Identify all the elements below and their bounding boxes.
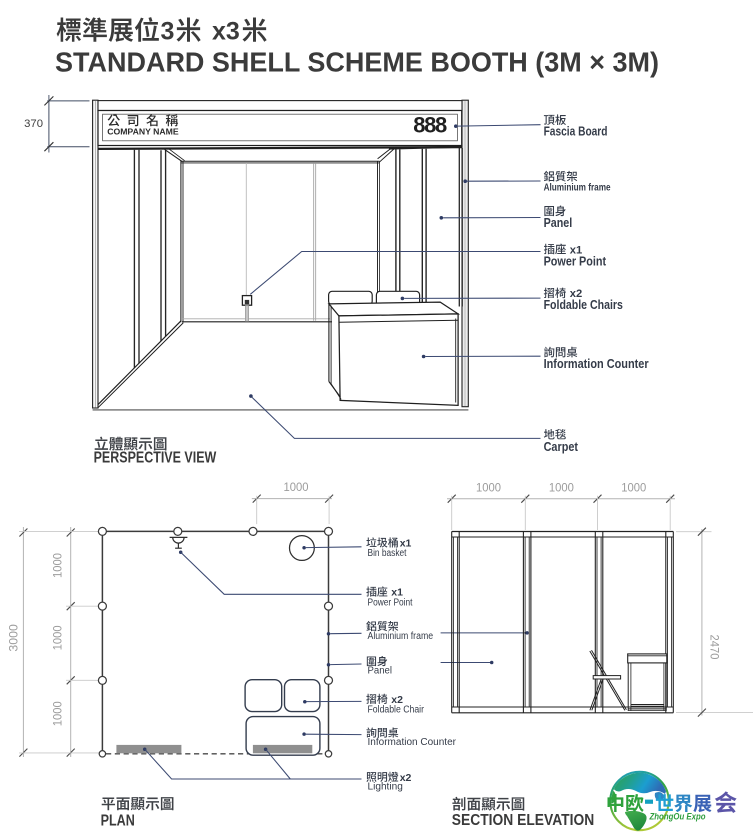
svg-text:1000: 1000: [549, 480, 574, 494]
svg-text:1000: 1000: [476, 480, 501, 494]
svg-text:Fascia Board: Fascia Board: [544, 123, 608, 138]
svg-text:Panel: Panel: [544, 215, 573, 230]
svg-text:STANDARD SHELL SCHEME BOOTH (3: STANDARD SHELL SCHEME BOOTH (3M × 3M): [55, 47, 659, 78]
svg-text:Foldable Chairs: Foldable Chairs: [544, 297, 623, 312]
svg-text:1000: 1000: [621, 480, 646, 494]
svg-text:Aluminium frame: Aluminium frame: [368, 631, 434, 642]
svg-text:SECTION ELEVATION: SECTION ELEVATION: [452, 812, 594, 829]
svg-text:2470: 2470: [707, 635, 721, 660]
svg-text:COMPANY NAME: COMPANY NAME: [107, 126, 179, 136]
svg-text:Power Point: Power Point: [368, 598, 413, 609]
svg-text:Lighting: Lighting: [368, 782, 403, 793]
svg-text:370: 370: [24, 118, 43, 130]
svg-text:Information Counter: Information Counter: [544, 356, 649, 371]
svg-text:ZhongOu Expo: ZhongOu Expo: [649, 812, 706, 822]
svg-text:Aluminium frame: Aluminium frame: [544, 182, 612, 193]
svg-text:1000: 1000: [284, 480, 309, 494]
svg-text:Carpet: Carpet: [544, 439, 579, 454]
svg-text:1000: 1000: [50, 553, 64, 578]
svg-text:1000: 1000: [50, 625, 64, 650]
svg-text:Information Counter: Information Counter: [368, 737, 457, 748]
svg-text:Power Point: Power Point: [544, 253, 607, 268]
svg-text:3: 3: [161, 18, 175, 46]
svg-text:3000: 3000: [6, 624, 20, 652]
svg-text:Panel: Panel: [368, 666, 393, 677]
svg-text:888: 888: [413, 113, 447, 138]
svg-text:PLAN: PLAN: [101, 812, 135, 829]
svg-text:x3: x3: [212, 18, 240, 46]
svg-text:Bin basket: Bin basket: [368, 548, 407, 559]
svg-text:Foldable Chair: Foldable Chair: [368, 705, 425, 716]
svg-text:PERSPECTIVE VIEW: PERSPECTIVE VIEW: [94, 449, 217, 466]
svg-text:1000: 1000: [50, 701, 64, 726]
